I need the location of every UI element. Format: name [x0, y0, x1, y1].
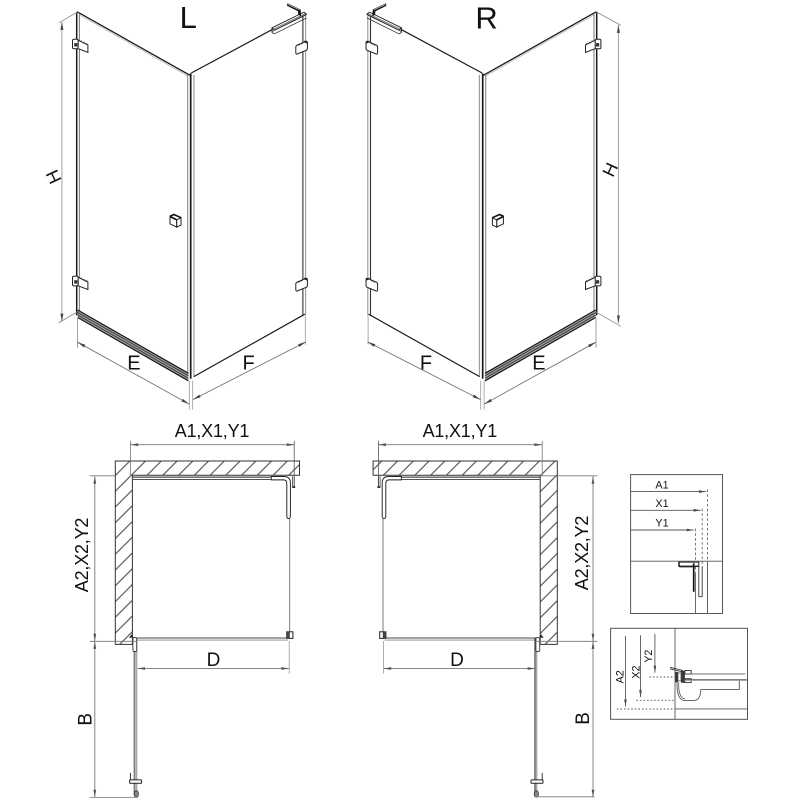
- svg-text:A1: A1: [655, 479, 668, 491]
- svg-text:D: D: [207, 650, 221, 671]
- svg-text:A2,X2,Y2: A2,X2,Y2: [572, 516, 592, 591]
- svg-text:L: L: [180, 0, 197, 35]
- svg-text:Y2: Y2: [643, 650, 655, 663]
- svg-text:F: F: [420, 353, 432, 375]
- svg-text:X2: X2: [631, 665, 643, 678]
- svg-text:B: B: [573, 712, 594, 725]
- svg-text:X1: X1: [655, 498, 668, 510]
- svg-text:Y1: Y1: [655, 518, 668, 530]
- svg-text:B: B: [76, 713, 97, 726]
- svg-text:A2,X2,Y2: A2,X2,Y2: [72, 518, 92, 593]
- svg-text:E: E: [127, 353, 140, 375]
- svg-text:R: R: [475, 1, 497, 36]
- svg-text:A2: A2: [615, 670, 627, 683]
- svg-text:E: E: [532, 353, 545, 375]
- svg-text:D: D: [450, 650, 464, 671]
- svg-text:F: F: [242, 353, 254, 375]
- svg-text:A1,X1,Y1: A1,X1,Y1: [423, 421, 498, 441]
- svg-text:A1,X1,Y1: A1,X1,Y1: [175, 421, 250, 441]
